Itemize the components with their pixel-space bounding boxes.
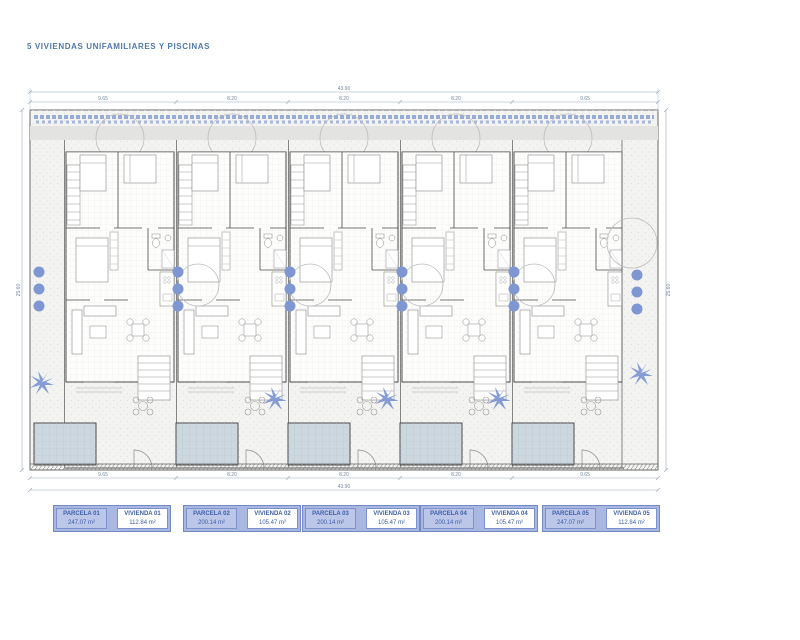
legend-parcel-04: PARCELA 04 200.14 m² VIVIENDA 04 105.47 … <box>420 505 538 532</box>
dim-depth-left: 25.60 <box>16 284 22 297</box>
legend-parcel-05: PARCELA 05 247.07 m² VIVIENDA 05 112.84 … <box>542 505 660 532</box>
parcel-area: 247.07 m² <box>68 519 95 527</box>
house-area-box: VIVIENDA 05 112.84 m² <box>606 508 657 529</box>
parcel-area: 200.14 m² <box>198 519 225 527</box>
parcel-area-box: PARCELA 05 247.07 m² <box>545 508 596 529</box>
house-area-box: VIVIENDA 03 105.47 m² <box>366 508 417 529</box>
parcel-label: PARCELA 01 <box>63 510 100 518</box>
legend-parcel-02: PARCELA 02 200.14 m² VIVIENDA 02 105.47 … <box>183 505 301 532</box>
dim-depth-right: 25.60 <box>666 284 672 297</box>
house-label: VIVIENDA 05 <box>613 510 649 518</box>
parcel-label: PARCELA 05 <box>552 510 589 518</box>
house-area-box: VIVIENDA 04 105.47 m² <box>484 508 535 529</box>
dim-seg-3-bottom: 8.20 <box>339 472 349 478</box>
parcel-area-box: PARCELA 02 200.14 m² <box>186 508 237 529</box>
dim-seg-2-bottom: 8.20 <box>227 472 237 478</box>
parcel-area-box: PARCELA 04 200.14 m² <box>423 508 474 529</box>
dim-total-bottom: 43.90 <box>338 484 351 490</box>
dim-seg-1-bottom: 9.65 <box>98 472 108 478</box>
site-plan-drawing: 43.90 9.65 8.20 8.20 8.20 9.65 9.65 8.20… <box>0 0 800 640</box>
parcel-area: 200.14 m² <box>317 519 344 527</box>
legend-row: PARCELA 01 247.07 m² VIVIENDA 01 112.84 … <box>0 505 800 535</box>
dim-seg-1: 9.65 <box>98 96 108 102</box>
front-fence <box>30 464 658 470</box>
house-label: VIVIENDA 02 <box>254 510 290 518</box>
dim-seg-2: 8.20 <box>227 96 237 102</box>
house-area-box: VIVIENDA 02 105.47 m² <box>247 508 298 529</box>
legend-parcel-03: PARCELA 03 200.14 m² VIVIENDA 03 105.47 … <box>302 505 420 532</box>
parcel-label: PARCELA 04 <box>430 510 467 518</box>
parcel-area-box: PARCELA 03 200.14 m² <box>305 508 356 529</box>
dim-seg-3: 8.20 <box>339 96 349 102</box>
house-label: VIVIENDA 03 <box>373 510 409 518</box>
parcel-area-box: PARCELA 01 247.07 m² <box>56 508 107 529</box>
dim-total-top: 43.90 <box>338 86 351 92</box>
house-area: 105.47 m² <box>496 519 523 527</box>
dim-seg-4: 8.20 <box>451 96 461 102</box>
dim-seg-5-bottom: 9.65 <box>580 472 590 478</box>
house-area-box: VIVIENDA 01 112.84 m² <box>117 508 168 529</box>
parcel-area: 200.14 m² <box>435 519 462 527</box>
dim-seg-5: 9.65 <box>580 96 590 102</box>
parcel-area: 247.07 m² <box>557 519 584 527</box>
dim-seg-4-bottom: 8.20 <box>451 472 461 478</box>
house-area: 105.47 m² <box>259 519 286 527</box>
parcel-label: PARCELA 02 <box>193 510 230 518</box>
house-area: 112.84 m² <box>618 519 645 527</box>
parcel-label: PARCELA 03 <box>312 510 349 518</box>
legend-parcel-01: PARCELA 01 247.07 m² VIVIENDA 01 112.84 … <box>53 505 171 532</box>
house-label: VIVIENDA 04 <box>491 510 527 518</box>
house-area: 105.47 m² <box>378 519 405 527</box>
house-area: 112.84 m² <box>129 519 156 527</box>
house-label: VIVIENDA 01 <box>124 510 160 518</box>
